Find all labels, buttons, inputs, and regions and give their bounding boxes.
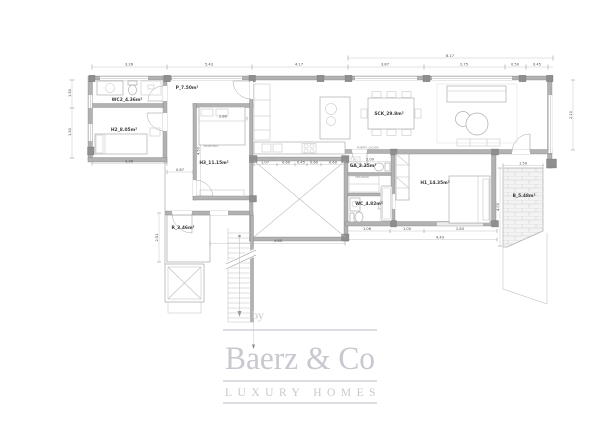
room-label-h1: H1_14.35m² xyxy=(420,180,449,186)
dim-terrace-width: 1.50 xyxy=(519,161,528,165)
dim-left-1: 1.50 xyxy=(68,88,72,97)
dim-top-2: 5.43 xyxy=(205,63,213,67)
floorplan-page: WC2_4.36m² H2_8.05m² P_7.50m² H3_11.15m²… xyxy=(0,0,600,424)
dim-bottom-3: 2.83 xyxy=(456,227,464,231)
dim-kitchen-3: 0.45 xyxy=(297,160,305,164)
dim-r-height: 2.51 xyxy=(155,233,159,241)
dim-h3-height: 4.50 xyxy=(196,146,200,155)
dim-right-edge: 2.10 xyxy=(569,110,573,119)
dim-patio-width: 4.60 xyxy=(274,239,283,243)
dim-bottom-total: 4.43 xyxy=(436,235,444,239)
dim-top-5: 2.75 xyxy=(460,63,468,67)
logo-brand-text: Baerz & Co xyxy=(225,341,375,377)
room-label-sck: SCK_29.8m² xyxy=(374,111,403,117)
terrace xyxy=(503,168,547,304)
room-label-ga: GA_2.35m² xyxy=(350,163,377,169)
dim-bottom-1: 1.06 xyxy=(363,227,372,231)
elevator-shaft xyxy=(165,162,210,313)
room-label-b: B_5.48m² xyxy=(513,193,536,199)
dim-corridor-width: 0.87 xyxy=(176,168,184,172)
dim-kitchen-1: 1.07 xyxy=(261,160,269,164)
room-label-wc: WC_4.82m² xyxy=(355,201,383,207)
logo-by-text: by xyxy=(252,308,264,322)
dim-ga-width: 2.00 xyxy=(366,158,375,162)
dim-kitchen-2: 0.60 xyxy=(282,160,291,164)
dim-top-6: 0.50 xyxy=(511,63,520,67)
dim-terrace-height: 4.00 xyxy=(496,202,500,211)
annotation-puerta-lacada: PUERTA LACADA xyxy=(357,146,379,150)
room-label-wc2: WC2_4.36m² xyxy=(112,97,143,103)
dim-bottom-2: 1.00 xyxy=(403,227,412,231)
dim-kitchen-5: 0.60 xyxy=(329,160,338,164)
annotation-vestidor: VESTIDOR xyxy=(355,175,369,179)
dim-h2-width: 3.26 xyxy=(125,159,134,163)
dim-h3-bed: 2.80 xyxy=(219,114,228,118)
patio-lightwell xyxy=(254,161,345,237)
dim-left-2: 1.50 xyxy=(68,127,72,136)
room-label-r: R_3.46m² xyxy=(172,225,195,231)
annotation-maletero: MALETERO xyxy=(204,144,219,148)
room-label-p: P_7.50m² xyxy=(176,85,199,91)
h1-furniture xyxy=(396,154,490,223)
floorplan-drawing: WC2_4.36m² H2_8.05m² P_7.50m² H3_11.15m²… xyxy=(0,0,600,424)
wc2-fixtures xyxy=(97,81,161,95)
dim-top-3: 4.17 xyxy=(295,63,303,67)
dim-top-1: 3.26 xyxy=(125,63,134,67)
dim-top-7: 0.45 xyxy=(533,63,541,67)
room-label-h2: H2_8.05m² xyxy=(111,127,137,133)
living-furniture xyxy=(437,84,517,146)
dim-top-total: 8.17 xyxy=(446,54,454,58)
kitchen-fixtures xyxy=(254,84,350,154)
room-r-outline xyxy=(167,215,210,262)
dim-top-4: 3.87 xyxy=(381,63,389,67)
room-label-h3: H3_11.15m² xyxy=(199,160,228,166)
logo-tagline-text: LUXURY HOMES xyxy=(225,387,381,399)
dim-kitchen-4: 0.60 xyxy=(310,160,319,164)
